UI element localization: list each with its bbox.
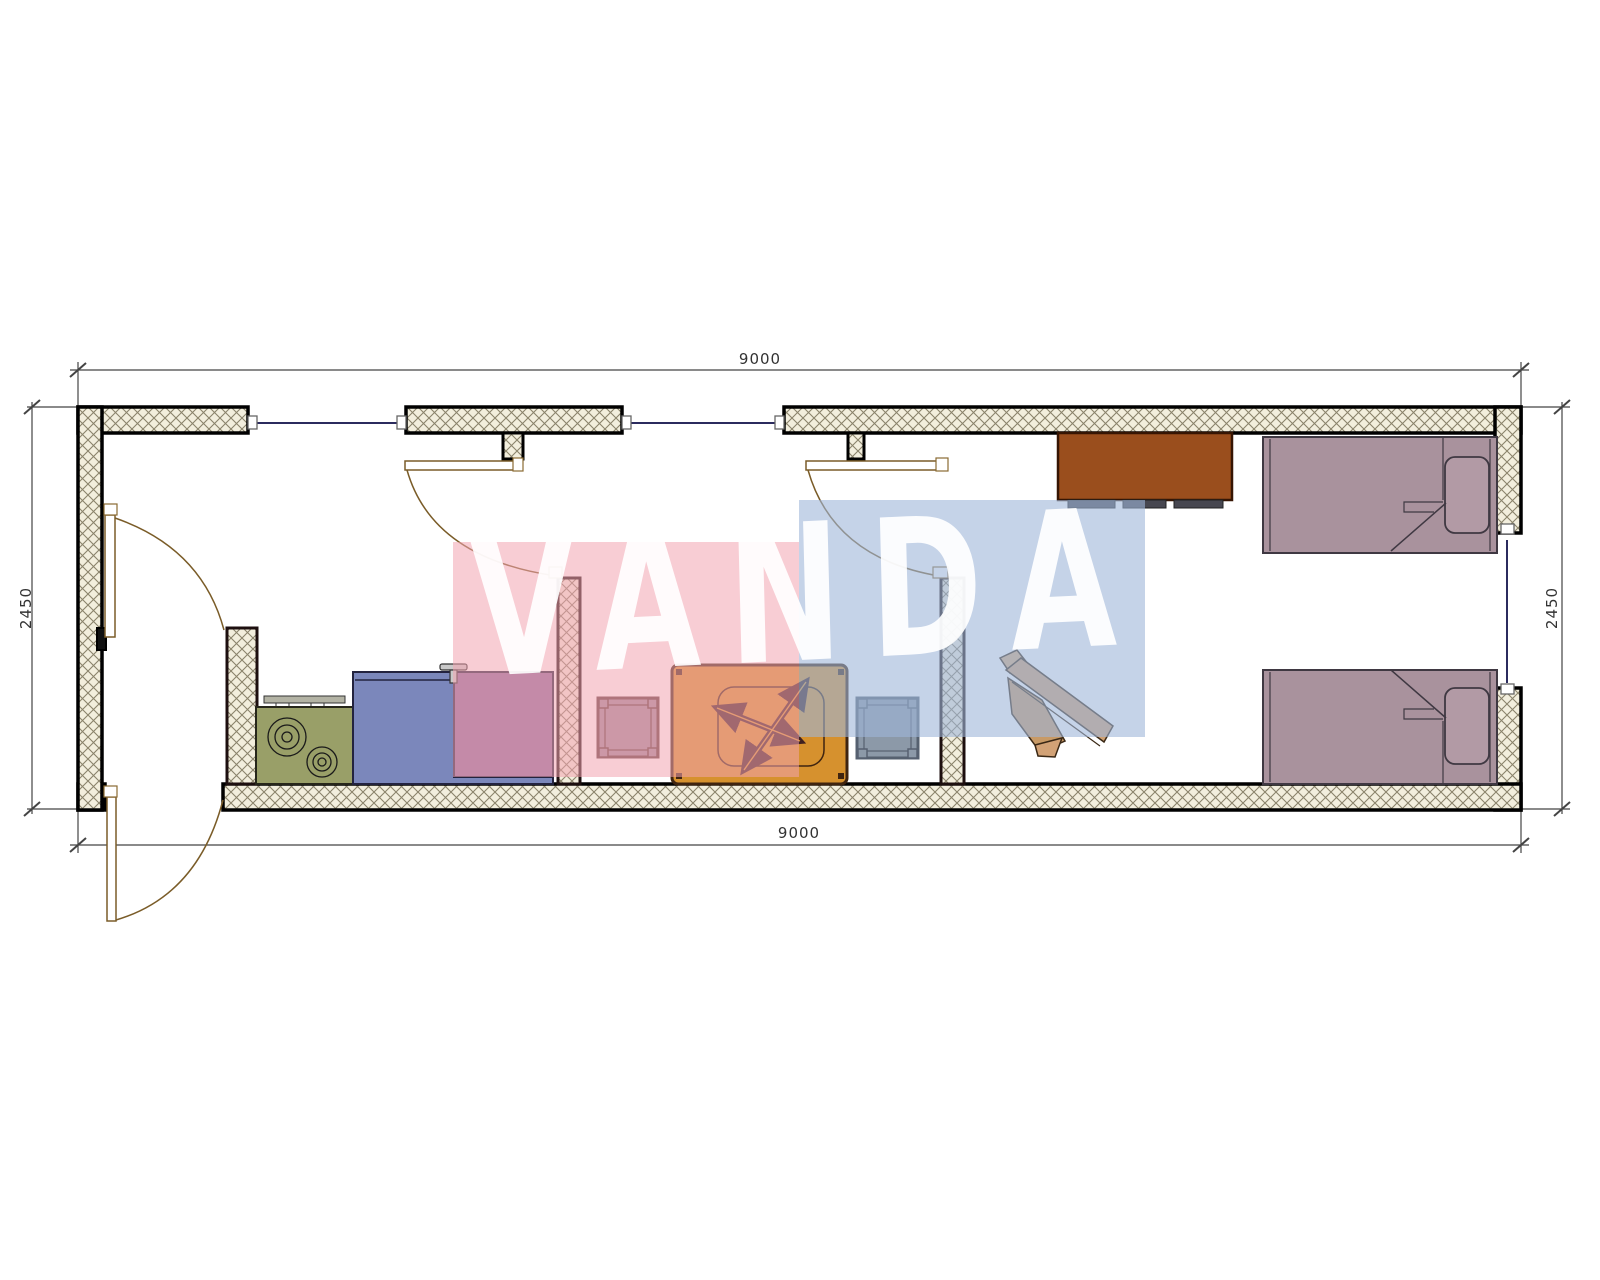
- bed-bottom: [1263, 670, 1497, 784]
- door-stub-bedroom: [848, 433, 864, 459]
- stove-backsplash: [264, 696, 345, 703]
- door-leaf-hall: [105, 515, 115, 637]
- dimension-label-right: 2450: [1543, 528, 1561, 688]
- pillow: [1445, 457, 1489, 533]
- wall-top-segment-3: [784, 407, 1521, 433]
- wall-top-segment-2: [406, 407, 622, 433]
- partition-hall-kitchen: [227, 628, 257, 784]
- floor-plan-page: VANDA 9000 9000 2450 2450: [0, 0, 1600, 1280]
- wall-left: [78, 407, 102, 810]
- door-stub-living: [503, 433, 523, 459]
- door-swing-entrance: [116, 800, 223, 920]
- door-swing-hall: [115, 518, 224, 630]
- bed-top: [1263, 437, 1497, 553]
- dimension-label-top: 9000: [680, 350, 840, 368]
- door-leaf-bedroom: [806, 461, 947, 470]
- watermark-text: VANDA: [468, 483, 1146, 706]
- door-leaf-entrance: [107, 797, 116, 921]
- door-leaf-living: [405, 461, 520, 470]
- wall-right-upper: [1495, 407, 1521, 533]
- pillow: [1445, 688, 1489, 764]
- dimension-label-bottom: 9000: [719, 824, 879, 842]
- wall-bottom: [223, 784, 1521, 810]
- dimension-label-left: 2450: [17, 528, 35, 688]
